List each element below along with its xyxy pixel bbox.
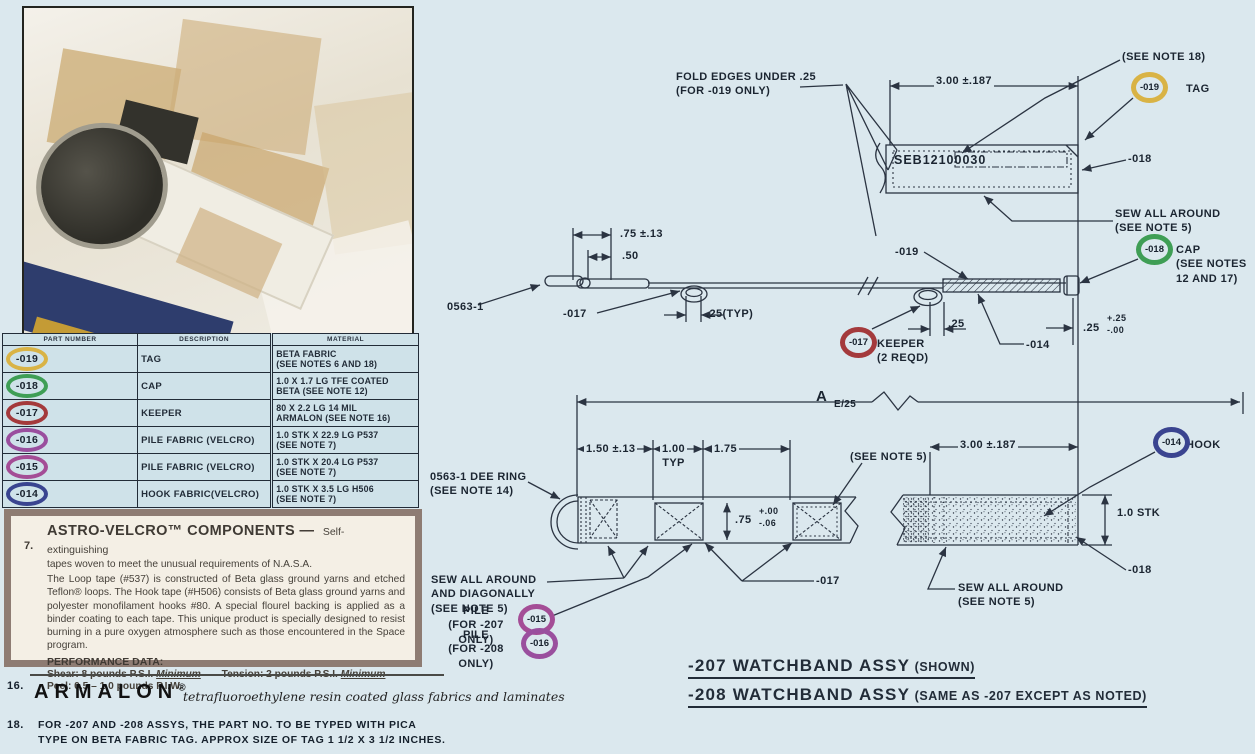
hook-label: HOOK	[1186, 438, 1221, 452]
dim-25-tol-minus: -.00	[1107, 325, 1124, 337]
dim-75b-plus: +.00	[757, 506, 780, 518]
document-page: PART NUMBER DESCRIPTION MATERIAL -019 TA…	[0, 0, 1255, 754]
sew-all-around-assembly-note: SEW ALL AROUND (SEE NOTE 5)	[958, 581, 1063, 610]
callout-018-tag: -018	[1128, 152, 1152, 166]
material-cell: 1.0 X 1.7 LG TFE COATED BETA (SEE NOTE 1…	[272, 373, 419, 400]
dim-75b-base: .75	[733, 513, 754, 527]
balloon-014-ring: -014	[1153, 427, 1190, 458]
balloon-014: -014	[1153, 427, 1190, 458]
description-cell: HOOK FABRIC(VELCRO)	[138, 481, 272, 508]
dim-100-typ: 1.00 TYP	[660, 442, 687, 471]
part-number-cell: -014	[3, 481, 138, 508]
table-row: -014 HOOK FABRIC(VELCRO) 1.0 STK X 3.5 L…	[3, 481, 419, 508]
table-row: -016 PILE FABRIC (VELCRO) 1.0 STK X 22.9…	[3, 427, 419, 454]
callout-017-side: -017	[563, 307, 587, 321]
part-number-cell: -015	[3, 454, 138, 481]
title-208-suffix: (SAME AS -207 EXCEPT AS NOTED)	[915, 689, 1147, 703]
balloon-017: -017	[840, 327, 877, 358]
armalon-brand: ARMALON®	[34, 681, 186, 704]
dim-25-keeper: .25	[948, 317, 965, 331]
balloon-018-ring: -018	[1136, 234, 1173, 265]
note18-text: FOR -207 AND -208 ASSYS, THE PART NO. TO…	[38, 718, 446, 748]
col-header-description: DESCRIPTION	[138, 334, 272, 346]
dim-75b-minus: -.06	[757, 518, 778, 530]
note16-number: 16.	[7, 680, 24, 692]
note7-body: The Loop tape (#537) is constructed of B…	[47, 573, 405, 653]
title-207-suffix: (SHOWN)	[915, 660, 975, 674]
note7-performance-heading: PERFORMANCE DATA:	[47, 656, 405, 668]
astro-velcro-note-box: 7. ASTRO-VELCRO™ COMPONENTS — Self-extin…	[4, 509, 422, 667]
balloon-016-ring: -016	[521, 628, 558, 659]
see-note-5-ref: (SEE NOTE 5)	[850, 450, 927, 464]
balloon-016: -016	[521, 628, 558, 659]
table-row: -019 TAG BETA FABRIC (SEE NOTES 6 AND 18…	[3, 346, 419, 373]
pile-208-note: PILE (FOR -208 ONLY)	[431, 628, 521, 671]
note7-title: ASTRO-VELCRO™ COMPONENTS —	[47, 523, 314, 539]
see-note-18-ref: (SEE NOTE 18)	[1122, 50, 1205, 64]
stock-width-dimension: 1.0 STK	[1117, 506, 1160, 520]
dee-ring-ref-side: 0563-1	[447, 300, 484, 314]
tag-label: TAG	[1186, 82, 1210, 96]
balloon-017-ring: -017	[840, 327, 877, 358]
dee-ring-note: 0563-1 DEE RING (SEE NOTE 14)	[430, 470, 526, 499]
table-header-row: PART NUMBER DESCRIPTION MATERIAL	[3, 334, 419, 346]
callout-019-side: -019	[895, 245, 919, 259]
material-cell: 1.0 STK X 3.5 LG H506 (SEE NOTE 7)	[272, 481, 419, 508]
part-ring-016: -016	[6, 428, 48, 452]
balloon-019-ring: -019	[1131, 72, 1168, 103]
callout-017-assembly: -017	[816, 574, 840, 588]
dim-a: A	[816, 387, 827, 407]
dim-75: .75 ±.13	[620, 227, 663, 241]
part-number-cell: -018	[3, 373, 138, 400]
dim-25-tol-plus: +.25	[1107, 313, 1126, 325]
cap-note: CAP (SEE NOTES 12 AND 17)	[1176, 243, 1247, 286]
title-208-assy: -208 WATCHBAND ASSY (SAME AS -207 EXCEPT…	[688, 685, 1147, 708]
dim-a-sub: E/25	[834, 398, 856, 411]
side-view-geometry	[478, 228, 1138, 345]
tag-length-dimension: 3.00 ±.187	[934, 74, 994, 88]
dim-25-tol-base: .25	[1083, 321, 1100, 335]
dim-175: 1.75	[712, 442, 739, 456]
dim-25-typ: .25(TYP)	[706, 307, 753, 321]
dim-150: 1.50 ±.13	[584, 442, 637, 456]
part-ring-019: -019	[6, 347, 48, 371]
callout-018-assembly: -018	[1128, 563, 1152, 577]
col-header-material: MATERIAL	[272, 334, 419, 346]
callout-014-side: -014	[1026, 338, 1050, 352]
band-length-dimension: 3.00 ±.187	[958, 438, 1018, 452]
keeper-note: KEEPER (2 REQD)	[877, 337, 928, 366]
part-ring-014: -014	[6, 482, 48, 506]
material-cell: 1.0 STK X 22.9 LG P537 (SEE NOTE 7)	[272, 427, 419, 454]
description-cell: PILE FABRIC (VELCRO)	[138, 454, 272, 481]
balloon-019: -019	[1131, 72, 1168, 103]
description-cell: PILE FABRIC (VELCRO)	[138, 427, 272, 454]
material-cell: 80 X 2.2 LG 14 MIL ARMALON (SEE NOTE 16)	[272, 400, 419, 427]
title-207-text: -207 WATCHBAND ASSY	[688, 656, 910, 675]
title-207-assy: -207 WATCHBAND ASSY (SHOWN)	[688, 656, 975, 679]
table-row: -017 KEEPER 80 X 2.2 LG 14 MIL ARMALON (…	[3, 400, 419, 427]
watch-photo	[22, 6, 414, 336]
sew-all-around-tag-note: SEW ALL AROUND (SEE NOTE 5)	[1115, 207, 1220, 236]
note7-intro: tapes woven to meet the unusual requirem…	[47, 559, 405, 570]
table-row: -015 PILE FABRIC (VELCRO) 1.0 STK X 20.4…	[3, 454, 419, 481]
description-cell: KEEPER	[138, 400, 272, 427]
note7-title-line: ASTRO-VELCRO™ COMPONENTS — Self-extingui…	[47, 522, 405, 558]
part-ring-015: -015	[6, 455, 48, 479]
part-number-cell: -017	[3, 400, 138, 427]
part-ring-017: -017	[6, 401, 48, 425]
fold-edges-note: FOLD EDGES UNDER .25 (FOR -019 ONLY)	[676, 70, 816, 99]
table-row: -018 CAP 1.0 X 1.7 LG TFE COATED BETA (S…	[3, 373, 419, 400]
balloon-018: -018	[1136, 234, 1173, 265]
note18-number: 18.	[7, 719, 24, 731]
material-cell: BETA FABRIC (SEE NOTES 6 AND 18)	[272, 346, 419, 373]
dim-50: .50	[622, 249, 639, 263]
part-number-cell: -016	[3, 427, 138, 454]
description-cell: TAG	[138, 346, 272, 373]
tag-part-number-text: SEB12100030	[894, 152, 986, 168]
col-header-part-number: PART NUMBER	[3, 334, 138, 346]
note7-number: 7.	[24, 540, 33, 552]
title-208-text: -208 WATCHBAND ASSY	[688, 685, 910, 704]
description-cell: CAP	[138, 373, 272, 400]
divider-rule	[30, 674, 444, 676]
part-ring-018: -018	[6, 374, 48, 398]
material-cell: 1.0 STK X 20.4 LG P537 (SEE NOTE 7)	[272, 454, 419, 481]
part-number-cell: -019	[3, 346, 138, 373]
parts-table: PART NUMBER DESCRIPTION MATERIAL -019 TA…	[2, 333, 419, 508]
